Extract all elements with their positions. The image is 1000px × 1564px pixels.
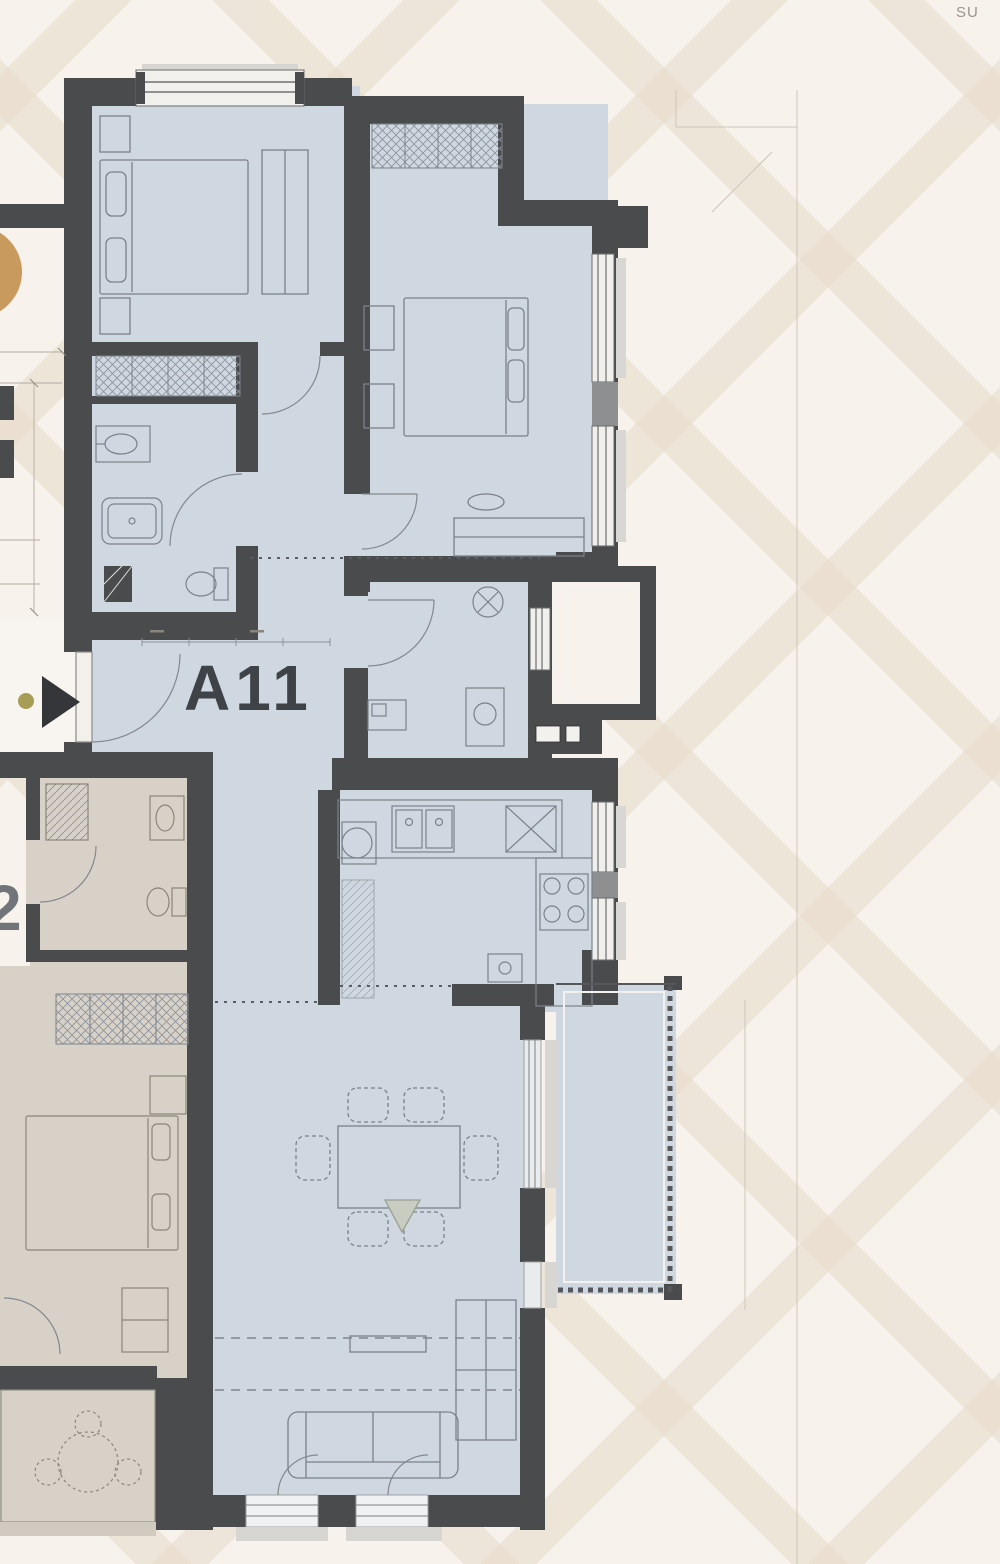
- site-lines: [676, 90, 797, 1564]
- site-corner-text: SU: [956, 5, 1000, 20]
- balcony-floor: [556, 984, 676, 1294]
- unit-label-adjacent: 2: [0, 876, 22, 940]
- entrance-dot-icon: [18, 693, 34, 709]
- light-niche: [548, 578, 644, 712]
- floor-plan-drawing: [0, 0, 1000, 1564]
- floor-plan-page: A11 2 SU: [0, 0, 1000, 1564]
- unit-label-a11: A11: [184, 656, 313, 720]
- site-circle: [0, 226, 22, 318]
